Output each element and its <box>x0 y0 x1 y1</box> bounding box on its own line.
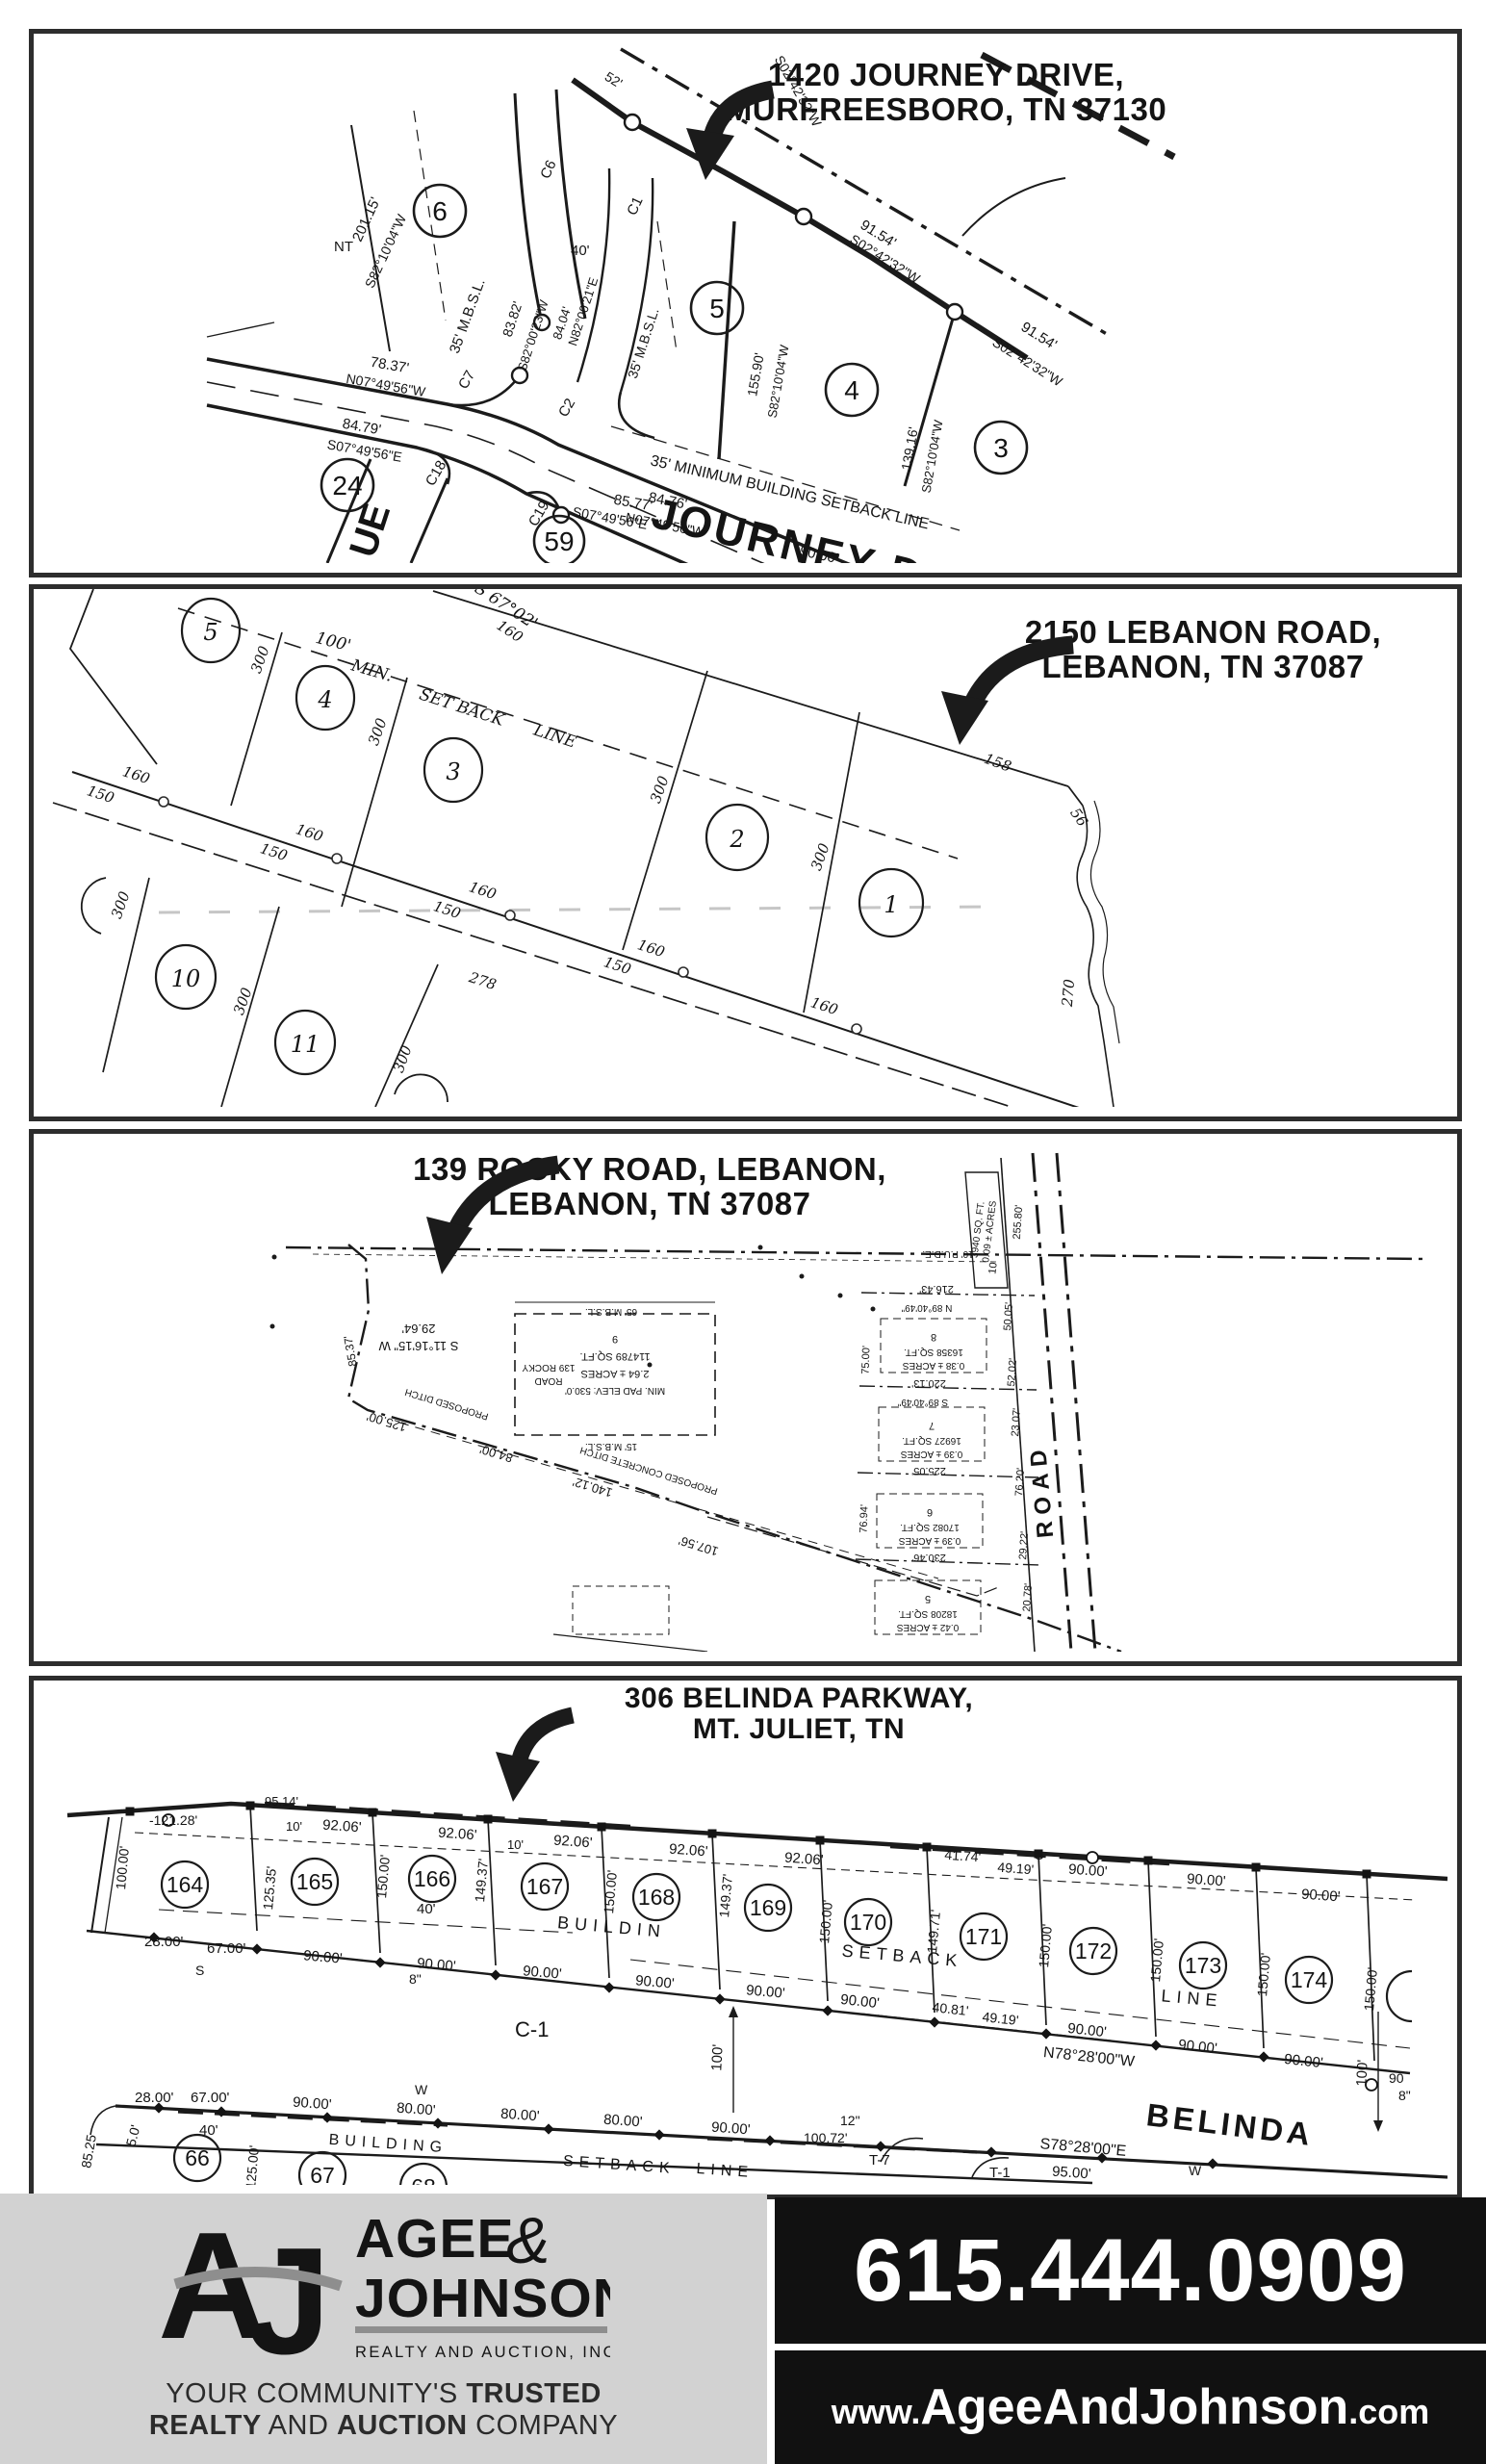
lot-number: 167 <box>526 1874 563 1899</box>
address-callout: 2150 LEBANON ROAD, LEBANON, TN 37087 <box>941 614 1381 745</box>
dim-label: 75.00' <box>859 1346 872 1374</box>
dim-label: 150.00' <box>1036 1923 1055 1968</box>
dim-label: 91.54' <box>1018 319 1060 353</box>
dim-label: 10' P.U.D.E. <box>922 1248 973 1259</box>
footer-contact: 615.444.0909 www.AgeeAndJohnson.com <box>775 2197 1486 2464</box>
dim-label: 35' M.B.S.L. <box>625 306 662 380</box>
tagline-line-2: REALTY AND AUCTION COMPANY <box>149 2410 618 2442</box>
lot-number: 174 <box>1291 1967 1328 1992</box>
dim-label: 139.16' <box>898 425 921 472</box>
address-line-2: LEBANON, TN 37087 <box>489 1186 811 1221</box>
dim-label: 100' <box>314 629 353 655</box>
dim-label: 80.00' <box>500 2106 541 2125</box>
dim-label: 149.37' <box>472 1858 491 1903</box>
lot-area: 16927 SQ.FT. <box>902 1435 961 1446</box>
dim-label: 230.46' <box>911 1552 946 1563</box>
tagline-text: AND <box>262 2410 337 2441</box>
dim-label: 65' M.B.S.L. <box>585 1306 637 1317</box>
lot-number: 3 <box>993 433 1009 463</box>
lot-number: 166 <box>414 1866 450 1891</box>
dim-label: N 89°40'49" <box>901 1302 952 1313</box>
lot-number: 66 <box>185 2145 210 2170</box>
auction-flyer-page: 6 5 4 3 24 59 201.15' S82°10'04"W NT 35'… <box>0 0 1486 2464</box>
address-line-2: MT. JULIET, TN <box>693 1713 905 1745</box>
lot-number: 11 <box>291 1031 320 1058</box>
logo-underline <box>355 2326 607 2333</box>
dim-label: S <box>1035 1847 1043 1862</box>
dim-label: 225.05' <box>911 1465 946 1476</box>
lot-number: 5 <box>925 1593 931 1604</box>
lot-elev: MIN. PAD ELEV: 530.0' <box>565 1385 665 1396</box>
monogram-letter-j: J <box>246 2217 331 2374</box>
street-name: BELINDA <box>1144 2096 1316 2152</box>
dim-label: S82°10'04"W <box>919 418 946 494</box>
dim-label: 201.15' <box>349 194 384 244</box>
dim-label: 76.20' <box>1013 1468 1027 1497</box>
lot-address: ROAD <box>535 1375 563 1386</box>
dim-label: LINE <box>1161 1986 1224 2011</box>
street-name: ROAD <box>1025 1442 1059 1539</box>
address-callout: 306 BELINDA PARKWAY, MT. JULIET, TN <box>496 1682 973 1802</box>
dim-label: 90 <box>1389 2070 1404 2086</box>
dim-label: T-1 <box>989 2165 1011 2181</box>
dim-label: 160 <box>294 820 325 845</box>
dim-label: N07°49'56"W <box>345 371 427 399</box>
tagline-text: COMPANY <box>468 2410 619 2441</box>
dimension-labels: 29.64' S 11°16'15" W 85.37' 125.00' 84.0… <box>341 1200 1059 1632</box>
dim-label: 125.00' <box>365 1409 408 1435</box>
brand-name-johnson: JOHNSON <box>355 2268 610 2329</box>
dim-label: 255.80' <box>1012 1205 1025 1241</box>
brand-name-agee: AGEE <box>355 2208 515 2270</box>
lot-number: 5 <box>203 619 218 646</box>
lot-number: 67 <box>310 2163 335 2185</box>
dim-label: 29.64' <box>401 1322 435 1336</box>
lot-number: 4 <box>317 686 332 713</box>
dim-label: C6 <box>537 158 560 182</box>
dim-label: 40' <box>199 2122 218 2139</box>
dim-label: 50.05' <box>1002 1302 1015 1331</box>
lot-number: 165 <box>296 1869 333 1894</box>
dim-label: 90.00' <box>1301 1886 1342 1906</box>
lot-area: 114789 SQ.FT. <box>579 1350 650 1362</box>
dim-label: W <box>415 2082 428 2097</box>
dim-label: 300 <box>230 985 256 1016</box>
dim-label: W <box>1189 2163 1202 2178</box>
dim-label: PROPOSED DITCH <box>404 1386 490 1422</box>
tagline-text-bold: TRUSTED <box>466 2378 601 2409</box>
dim-label: 300 <box>807 840 833 872</box>
dim-label: 90.00' <box>1177 2037 1217 2057</box>
dim-label: 150.00' <box>1361 1966 1380 2012</box>
plat-map-rocky-road: 29.64' S 11°16'15" W 85.37' 125.00' 84.0… <box>34 1134 1448 1652</box>
dim-label: 8" <box>409 1971 422 1987</box>
dim-label: 100' <box>708 2043 726 2071</box>
dim-label: 90.00' <box>303 1947 344 1966</box>
lot-number: 170 <box>850 1910 886 1935</box>
lot-acres: 2.64 ± ACRES <box>581 1368 650 1379</box>
dim-label: 160 <box>120 762 152 787</box>
lot-area: 17082 SQ.FT. <box>900 1522 960 1532</box>
lot-number: 172 <box>1075 1938 1112 1963</box>
dim-label: C1 <box>624 194 647 218</box>
dim-label: 78.37' <box>369 354 410 377</box>
dim-label: 270 <box>1059 978 1079 1009</box>
dim-label: 100.72' <box>804 2130 848 2145</box>
dim-label: 85.25 <box>78 2133 99 2169</box>
lot-address: 139 ROCKY <box>522 1362 575 1373</box>
dim-label: 80.00' <box>397 2100 437 2119</box>
address-line-2: LEBANON, TN 37087 <box>1042 649 1365 684</box>
lot-number: 169 <box>750 1895 786 1920</box>
dim-label: S 11°16'15" W <box>378 1339 459 1353</box>
lot-number: 10 <box>986 1262 999 1275</box>
dim-label: 52' <box>602 68 626 90</box>
dim-label: 155.90' <box>744 351 767 398</box>
dim-label: 90.00' <box>635 1972 676 1991</box>
lot-number: 68 <box>411 2174 436 2185</box>
dim-label: 12" <box>840 2113 860 2128</box>
website-box: www.AgeeAndJohnson.com <box>775 2350 1486 2464</box>
lot-acres: 0.39 ± ACRES <box>900 1449 962 1459</box>
dim-label: 220.13' <box>911 1377 946 1389</box>
dim-label: LINE <box>696 2161 755 2181</box>
address-line-1: 1420 JOURNEY DRIVE, <box>768 57 1124 92</box>
dim-label: S 89°40'49" <box>897 1397 948 1407</box>
lot-number: 9 <box>612 1333 618 1345</box>
dim-label: 5.0' <box>123 2123 143 2148</box>
dim-label: 90.00' <box>1068 1861 1109 1881</box>
dim-label: 90.00' <box>711 2119 752 2139</box>
dim-label: 40' <box>571 243 590 259</box>
dim-label: 216.43' <box>919 1283 954 1295</box>
dim-label: 95.00' <box>1052 2164 1092 2183</box>
taglines: YOUR COMMUNITY'S TRUSTED REALTY AND AUCT… <box>149 2378 618 2443</box>
dim-label: 300 <box>390 1042 416 1074</box>
dim-label: S82°10'04"W <box>765 343 792 419</box>
lot-number: 59 <box>544 526 574 556</box>
dim-label: 80.00' <box>603 2112 644 2131</box>
dim-label: 76.94' <box>858 1504 870 1533</box>
tagline-text-bold: AUCTION <box>337 2410 468 2441</box>
dim-label: 67.00' <box>191 2090 230 2106</box>
road-ticks <box>159 797 861 1034</box>
plat-map-belinda-parkway: 164 165 166 167 168 169 170 171 172 173 <box>34 1681 1448 2185</box>
dim-label: 28.00' <box>135 2090 174 2106</box>
footer-branding: A J AGEE & JOHNSON REALTY AND AUCTION, I… <box>0 2194 767 2464</box>
dim-label: 10' <box>286 1819 302 1834</box>
tagline-text: YOUR COMMUNITY'S <box>166 2378 466 2409</box>
footer: A J AGEE & JOHNSON REALTY AND AUCTION, I… <box>0 2194 1486 2464</box>
address-line-1: 306 BELINDA PARKWAY, <box>625 1682 973 1714</box>
phone-box: 615.444.0909 <box>775 2197 1486 2344</box>
dim-label: 149.37' <box>716 1873 735 1918</box>
lot-number: 10 <box>171 965 201 992</box>
dim-label: -121.28' <box>149 1812 197 1828</box>
lot-area: 18208 SQ.FT. <box>898 1608 958 1619</box>
lot-number: 24 <box>332 471 362 500</box>
lot-number: 3 <box>446 758 460 785</box>
dim-label: 92.06' <box>322 1817 363 1836</box>
plat-panel-belinda-parkway: 164 165 166 167 168 169 170 171 172 173 <box>29 1676 1462 2199</box>
lot-number: 5 <box>709 294 725 323</box>
dim-label: 90.00' <box>746 1982 786 2001</box>
website-suffix: .com <box>1348 2392 1429 2432</box>
dim-label: 52.02' <box>1006 1358 1019 1387</box>
website-url[interactable]: www.AgeeAndJohnson.com <box>832 2378 1430 2436</box>
dim-label: BUILDING <box>328 2132 448 2157</box>
dim-label: 84.00' <box>478 1442 515 1466</box>
dim-label: 35' M.B.S.L. <box>447 276 489 355</box>
dim-label: MIN. <box>348 655 395 685</box>
lot-number: 171 <box>965 1924 1002 1949</box>
lot-number: 1 <box>884 891 898 918</box>
website-domain: AgeeAndJohnson <box>920 2378 1348 2436</box>
dimension-labels: -121.28' 95.14' 10' 10' 92.06' 92.06' 92… <box>78 1794 1411 2185</box>
dim-label: S <box>195 1963 204 1978</box>
survey-lines <box>53 589 1119 1107</box>
lot-number: 164 <box>167 1872 204 1897</box>
dim-label: SET BACK <box>417 685 507 731</box>
dim-label: SETBACK <box>563 2153 677 2177</box>
dim-label: 90.00' <box>839 1991 880 2012</box>
dim-label: 8" <box>1398 2088 1411 2103</box>
lot-number: 2 <box>729 826 744 853</box>
dim-label: 23.07' <box>1010 1408 1023 1437</box>
dim-label: 300 <box>365 715 391 747</box>
website-prefix: www. <box>832 2392 921 2432</box>
dim-label: LINE <box>530 720 579 753</box>
dim-label: 125.00' <box>243 2144 262 2185</box>
tagline-line-1: YOUR COMMUNITY'S TRUSTED <box>149 2378 618 2410</box>
plat-panel-journey-drive: 6 5 4 3 24 59 201.15' S82°10'04"W NT 35'… <box>29 29 1462 577</box>
address-line-2: MURFREESBORO, TN 37130 <box>726 91 1166 127</box>
dim-label: 150.00' <box>1147 1938 1166 1983</box>
dim-label: 92.06' <box>438 1825 478 1844</box>
plat-map-journey-drive: 6 5 4 3 24 59 201.15' S82°10'04"W NT 35'… <box>34 34 1448 563</box>
callout-arrow-curve <box>519 1715 573 1763</box>
plat-panel-rocky-road: 29.64' S 11°16'15" W 85.37' 125.00' 84.0… <box>29 1129 1462 1666</box>
plat-panel-lebanon-road: 5 4 3 2 1 10 11 S 67°02' 160 100' MIN. <box>29 584 1462 1121</box>
dimension-labels: S 67°02' 160 100' MIN. SET BACK LINE 300… <box>85 589 1091 1075</box>
dim-label: 92.06' <box>669 1841 709 1861</box>
dim-label: 90.00' <box>293 2094 333 2114</box>
dim-label: 67.00' <box>207 1940 246 1957</box>
dim-label: 278 <box>466 968 499 993</box>
dim-label: 92.06' <box>784 1850 825 1869</box>
lot-number: 168 <box>638 1885 675 1910</box>
dim-label: 20.78' <box>1021 1583 1035 1612</box>
dim-label: 149.71' <box>924 1909 943 1954</box>
address-line-1: 2150 LEBANON ROAD, <box>1025 614 1381 650</box>
dim-label: 92.06' <box>553 1833 594 1852</box>
dim-label: 90.00' <box>1283 2051 1323 2071</box>
dim-label: 107.56' <box>677 1533 720 1559</box>
callout-arrow-head <box>496 1752 540 1802</box>
dim-label: C7 <box>455 368 478 392</box>
tagline-text-bold: REALTY <box>149 2410 262 2441</box>
dim-label: 28.00' <box>144 1934 184 1950</box>
dim-label: 100.00' <box>113 1845 132 1890</box>
dim-label: 83.82' <box>500 299 525 339</box>
dim-label: 300 <box>247 643 273 675</box>
lot-number: 6 <box>927 1506 933 1518</box>
dim-label: NT <box>334 239 353 255</box>
zone-label: C-1 <box>515 2017 549 2041</box>
dim-label: 56 <box>1066 805 1091 830</box>
dim-label: 29.22' <box>1017 1531 1031 1560</box>
dim-label: 49.19' <box>982 2009 1019 2028</box>
lot-number: 8 <box>931 1331 936 1343</box>
lot-number: 173 <box>1185 1953 1221 1978</box>
lot-acres: 0.42 ± ACRES <box>896 1622 959 1632</box>
dim-label: 125.35' <box>260 1865 279 1911</box>
dim-label: 90.00' <box>523 1963 563 1982</box>
lot-acres: 0.39 ± ACRES <box>898 1535 961 1546</box>
lot-area: 16358 SQ.FT. <box>904 1347 963 1357</box>
dim-label: 300 <box>108 888 134 920</box>
lot-number: 4 <box>844 375 859 405</box>
dim-label: 160 <box>808 993 840 1018</box>
dim-label: 90.00' <box>417 1955 457 1974</box>
dim-label: 15' M.B.S.L. <box>585 1441 637 1451</box>
dim-label: C2 <box>555 396 578 420</box>
dim-label: 150.00' <box>601 1869 620 1914</box>
dim-label: 40' <box>417 1901 436 1917</box>
agee-johnson-logo: A J AGEE & JOHNSON REALTY AND AUCTION, I… <box>158 2203 610 2374</box>
address-line-1: 139 ROCKY ROAD, LEBANON, <box>413 1151 886 1187</box>
dim-label: 85.37' <box>341 1335 359 1368</box>
plat-map-lebanon-road: 5 4 3 2 1 10 11 S 67°02' 160 100' MIN. <box>34 589 1448 1107</box>
address-callout: 1420 JOURNEY DRIVE, MURFREESBORO, TN 371… <box>686 57 1166 180</box>
dim-label: 49.19' <box>997 1860 1035 1878</box>
dim-label: 90.00' <box>1187 1871 1227 1890</box>
aj-monogram: A J <box>158 2203 341 2374</box>
dim-label: 100' <box>1353 2059 1371 2087</box>
dim-label: SETBACK <box>841 1941 963 1971</box>
dim-label: 158 <box>982 750 1013 776</box>
dim-label: 160 <box>467 878 499 903</box>
lot-number: 6 <box>432 196 448 226</box>
dim-label: 95.14' <box>265 1794 298 1809</box>
dim-label: 160 <box>635 936 667 961</box>
dim-label: 150.00' <box>816 1899 835 1944</box>
phone-number[interactable]: 615.444.0909 <box>854 2220 1407 2322</box>
dim-label: BUILDIN <box>556 1912 666 1941</box>
dim-label: 150.00' <box>1254 1952 1273 1997</box>
brand-ampersand: & <box>506 2204 550 2277</box>
dim-label: 10' <box>507 1837 524 1852</box>
lot-acres: 0.38 ± ACRES <box>902 1360 964 1371</box>
dim-label: 150.00' <box>373 1854 393 1899</box>
dim-label: N78°28'00"W <box>1042 2044 1136 2070</box>
dim-label: T-7 <box>869 2152 890 2169</box>
dim-label: 40.81' <box>932 1999 969 2018</box>
brand-subtitle: REALTY AND AUCTION, INC. <box>355 2344 610 2361</box>
lot-number: 7 <box>929 1420 935 1431</box>
dim-label: 41.74' <box>944 1847 982 1865</box>
